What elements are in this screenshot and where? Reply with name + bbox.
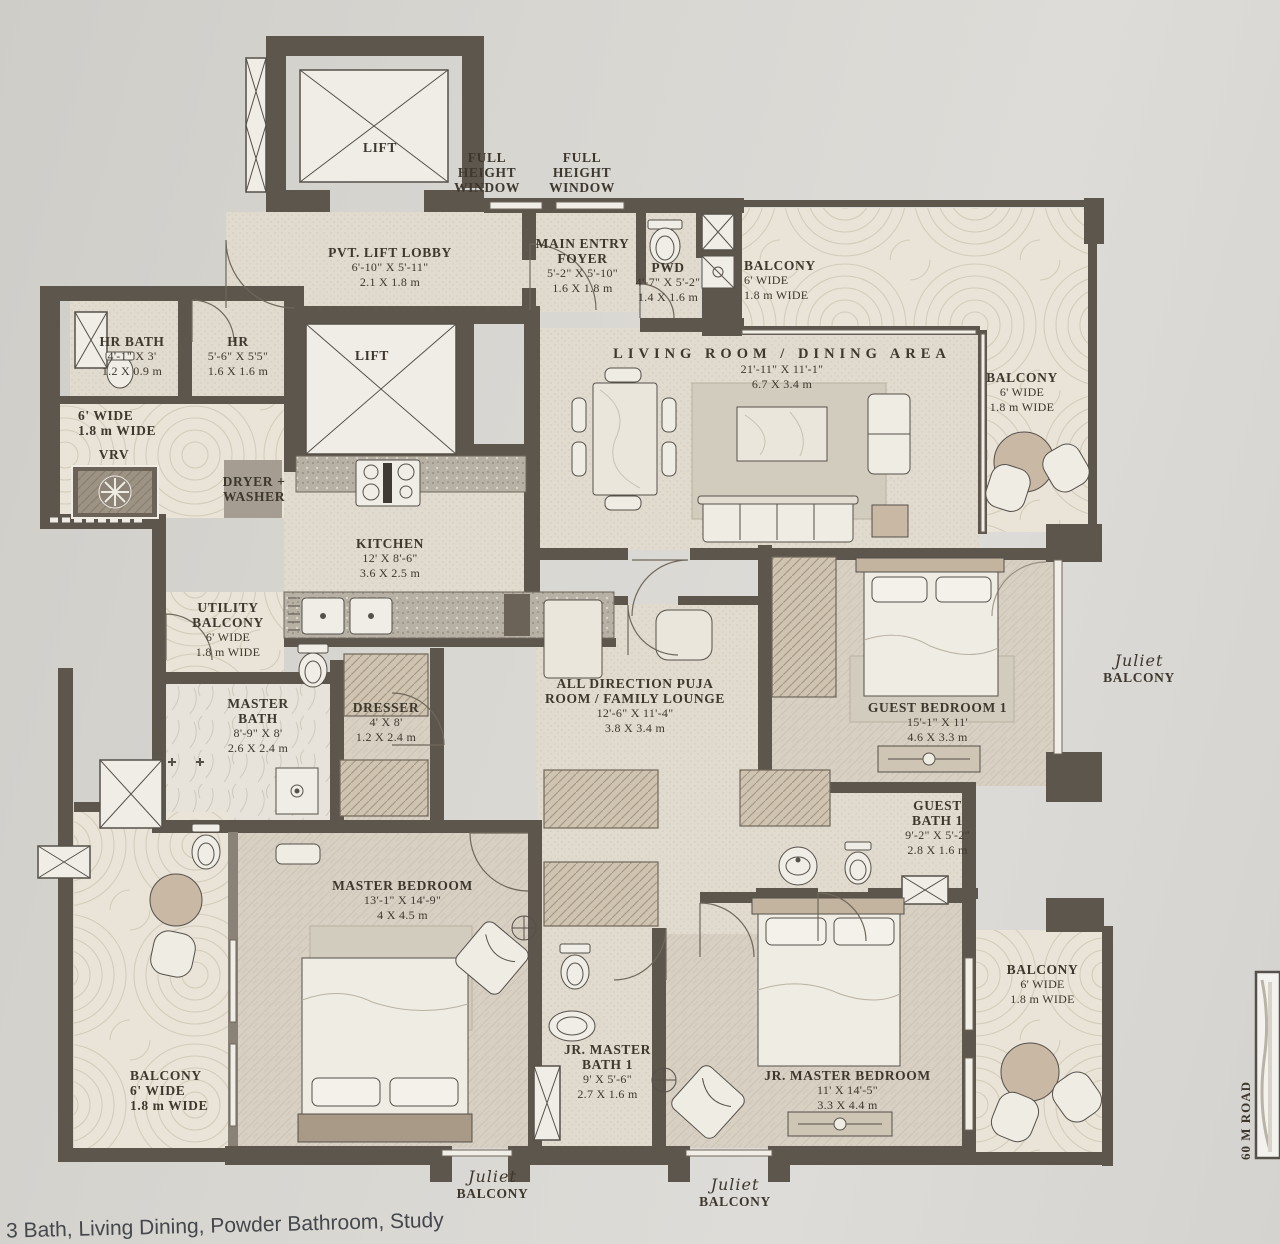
label-jr-master-bedroom: JR. MASTER BEDROOM11' X 14'-5"3.3 X 4.4 … bbox=[760, 1068, 935, 1112]
label-vrv: VRV bbox=[86, 447, 142, 462]
label-hr-bath: HR BATH4'-1" X 3'1.2 X 0.9 m bbox=[80, 334, 184, 378]
label-juliet-balcony-right: JulietBALCONY bbox=[1095, 652, 1183, 685]
label-balcony-top: BALCONY6' WIDE1.8 m WIDE bbox=[744, 258, 854, 302]
armchair bbox=[868, 394, 910, 474]
label-lift-top: LIFT bbox=[330, 140, 430, 155]
label-dryer-washer: DRYER +WASHER bbox=[206, 474, 302, 504]
sofa bbox=[698, 496, 858, 542]
label-pvt-lift-lobby: PVT. LIFT LOBBY6'-10" X 5'-11"2.1 X 1.8 … bbox=[290, 245, 490, 289]
label-guest-bedroom-1: GUEST BEDROOM 115'-1" X 11'4.6 X 3.3 m bbox=[855, 700, 1020, 744]
floor-plan-page: LIFT LIFT FULLHEIGHTWINDOW FULLHEIGHTWIN… bbox=[0, 0, 1280, 1244]
kitchen-sinks bbox=[288, 598, 392, 634]
key-plan bbox=[1256, 972, 1280, 1158]
label-pwd: PWD4'-7" X 5'-2"1.4 X 1.6 m bbox=[618, 260, 718, 304]
label-guest-bath-1: GUESTBATH 19'-2" X 5'-2"2.8 X 1.6 m bbox=[885, 798, 990, 857]
label-kitchen: KITCHEN12' X 8'-6"3.6 X 2.5 m bbox=[320, 536, 460, 580]
label-60m-road: 60 M ROAD bbox=[1238, 1040, 1254, 1160]
label-full-height-window-1: FULLHEIGHTWINDOW bbox=[447, 150, 527, 195]
tv-console bbox=[737, 407, 827, 461]
label-master-bath: MASTERBATH8'-9" X 8'2.6 X 2.4 m bbox=[200, 696, 316, 755]
label-juliet-balcony-2: JulietBALCONY bbox=[685, 1176, 785, 1209]
label-balcony-left: 6' WIDE1.8 m WIDE bbox=[78, 408, 188, 438]
label-balcony-bottom-right: BALCONY6' WIDE1.8 m WIDE bbox=[990, 962, 1095, 1006]
stove bbox=[356, 460, 420, 506]
label-utility-balcony: UTILITYBALCONY6' WIDE1.8 m WIDE bbox=[168, 600, 288, 659]
label-hr: HR5'-6" X 5'5"1.6 X 1.6 m bbox=[190, 334, 286, 378]
label-puja-lounge: ALL DIRECTION PUJAROOM / FAMILY LOUNGE12… bbox=[530, 676, 740, 735]
label-jr-master-bath-1: JR. MASTERBATH 19' X 5'-6"2.7 X 1.6 m bbox=[550, 1042, 665, 1101]
label-balcony-right: BALCONY6' WIDE1.8 m WIDE bbox=[972, 370, 1072, 414]
label-juliet-balcony-1: JulietBALCONY bbox=[445, 1168, 540, 1201]
label-lift-mid: LIFT bbox=[322, 348, 422, 363]
label-dresser: DRESSER4' X 8'1.2 X 2.4 m bbox=[330, 700, 442, 744]
oven bbox=[504, 594, 530, 636]
side-table bbox=[872, 505, 908, 537]
label-balcony-bottom-left: BALCONY6' WIDE1.8 m WIDE bbox=[130, 1068, 240, 1113]
label-living-dining: LIVING ROOM / DINING AREA21'-11" X 11'-1… bbox=[562, 346, 1002, 391]
label-full-height-window-2: FULLHEIGHTWINDOW bbox=[540, 150, 624, 195]
label-master-bedroom: MASTER BEDROOM13'-1" X 14'-9"4 X 4.5 m bbox=[320, 878, 485, 922]
